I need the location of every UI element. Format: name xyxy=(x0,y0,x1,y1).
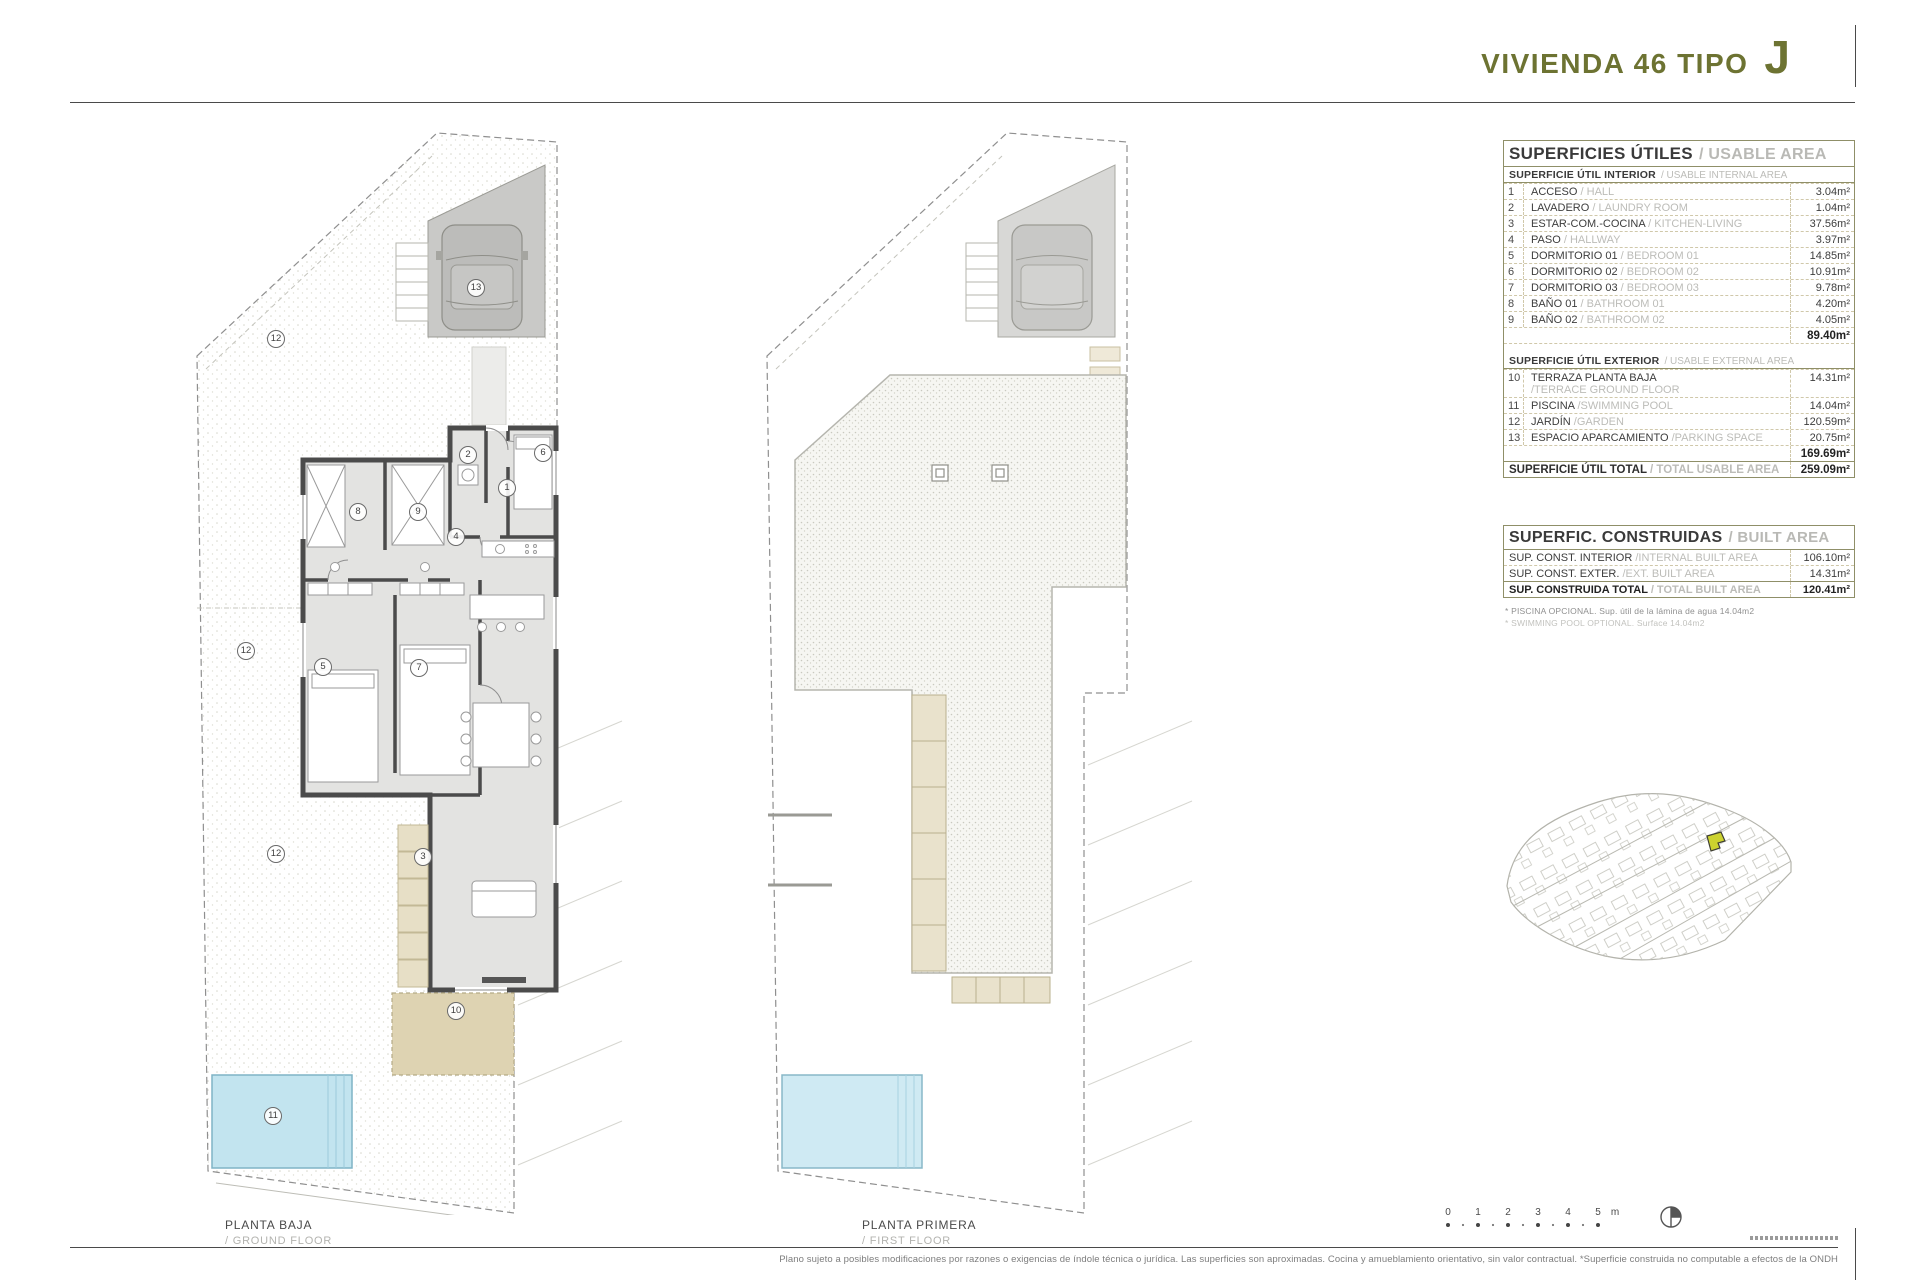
room-number-garden: 12 xyxy=(267,330,285,348)
room-number-bedroom1: 5 xyxy=(314,658,332,676)
header-border-segment xyxy=(1855,25,1856,87)
footnotes: * PISCINA OPCIONAL. Sup. útil de la lámi… xyxy=(1505,606,1754,628)
footer-border-segment xyxy=(1855,1228,1856,1280)
car-icon xyxy=(436,225,528,330)
table-row: 4PASO / HALLWAY3.97m² xyxy=(1504,231,1854,247)
room-number-terrace: 10 xyxy=(447,1002,465,1020)
scale-tick: 3 xyxy=(1535,1207,1541,1218)
room-number-laundry: 2 xyxy=(459,446,477,464)
table-row: 6DORMITORIO 02 / BEDROOM 0210.91m² xyxy=(1504,263,1854,279)
table-row: 12JARDÍN /GARDEN120.59m² xyxy=(1504,413,1854,429)
ground-floor-label: PLANTA BAJA / GROUND FLOOR xyxy=(225,1218,332,1247)
built-total-row: SUP. CONSTRUIDA TOTAL / TOTAL BUILT AREA… xyxy=(1504,581,1854,597)
north-arrow-icon xyxy=(1658,1204,1684,1235)
scale-tick: 5 xyxy=(1595,1207,1601,1218)
plan-sheet: VIVIENDA 46 TIPO J xyxy=(0,0,1920,1280)
scale-ticks-line xyxy=(1443,1221,1623,1229)
legal-disclaimer: Plano sujeto a posibles modificaciones p… xyxy=(500,1254,1838,1265)
table-spacer xyxy=(1504,343,1854,353)
interior-subheader: SUPERFICIE ÚTIL INTERIOR / USABLE INTERN… xyxy=(1504,167,1854,183)
room-number-hallway: 4 xyxy=(447,528,465,546)
title-text: VIVIENDA 46 TIPO xyxy=(1481,48,1748,80)
room-number-bedroom2: 6 xyxy=(534,444,552,462)
footnote-pool-en: * SWIMMING POOL OPTIONAL. Surface 14.04m… xyxy=(1505,618,1754,628)
room-number-parking: 13 xyxy=(467,279,485,297)
built-area-table: SUPERFIC. CONSTRUIDAS / BUILT AREA SUP. … xyxy=(1503,525,1855,598)
page-title: VIVIENDA 46 TIPO J xyxy=(1481,30,1790,84)
usable-area-table: SUPERFICIES ÚTILES / USABLE AREA SUPERFI… xyxy=(1503,140,1855,478)
ground-floor-plan: 1 2 3 4 5 6 7 8 9 10 11 12 12 12 13 xyxy=(170,125,630,1215)
table-row: 10TERRAZA PLANTA BAJA/TERRACE GROUND FLO… xyxy=(1504,369,1854,397)
scale-unit: m xyxy=(1611,1207,1619,1218)
table-row: 13ESPACIO APARCAMIENTO /PARKING SPACE20.… xyxy=(1504,429,1854,445)
scale-tick: 0 xyxy=(1445,1207,1451,1218)
fine-print-line xyxy=(1750,1236,1838,1240)
exterior-stairs xyxy=(396,243,428,321)
table-row: 2LAVADERO / LAUNDRY ROOM1.04m² xyxy=(1504,199,1854,215)
room-number-bath1: 8 xyxy=(349,503,367,521)
exterior-stairs xyxy=(966,243,998,321)
ground-floor-drawing xyxy=(170,125,630,1215)
table-row: 9BAÑO 02 / BATHROOM 024.05m² xyxy=(1504,311,1854,327)
scale-tick: 1 xyxy=(1475,1207,1481,1218)
exterior-subheader: SUPERFICIE ÚTIL EXTERIOR / USABLE EXTERN… xyxy=(1504,353,1854,369)
room-number-bedroom3: 7 xyxy=(410,659,428,677)
usable-total-row: SUPERFICIE ÚTIL TOTAL / TOTAL USABLE ARE… xyxy=(1504,461,1854,477)
footer-rule xyxy=(70,1247,1838,1248)
scale-tick: 4 xyxy=(1565,1207,1571,1218)
room-number-garden: 12 xyxy=(267,845,285,863)
table-row: 11PISCINA /SWIMMING POOL14.04m² xyxy=(1504,397,1854,413)
title-type-letter: J xyxy=(1764,30,1790,84)
entry-path xyxy=(472,347,506,425)
first-floor-label: PLANTA PRIMERA / FIRST FLOOR xyxy=(862,1218,976,1247)
usable-area-title: SUPERFICIES ÚTILES / USABLE AREA xyxy=(1504,141,1854,167)
pool xyxy=(212,1075,352,1168)
table-row: 5DORMITORIO 01 / BEDROOM 0114.85m² xyxy=(1504,247,1854,263)
exterior-subtotal: 169.69m² xyxy=(1504,445,1854,461)
table-row: 7DORMITORIO 03 / BEDROOM 039.78m² xyxy=(1504,279,1854,295)
road-hatch xyxy=(1088,721,1192,1165)
table-row: SUP. CONST. EXTER. /EXT. BUILT AREA14.31… xyxy=(1504,565,1854,581)
table-row: SUP. CONST. INTERIOR /INTERNAL BUILT ARE… xyxy=(1504,550,1854,565)
car-icon xyxy=(1012,225,1092,330)
table-row: 8BAÑO 01 / BATHROOM 014.20m² xyxy=(1504,295,1854,311)
room-number-pool: 11 xyxy=(264,1107,282,1125)
first-floor-plan xyxy=(740,125,1200,1215)
site-location-map xyxy=(1493,788,1813,978)
first-floor-drawing xyxy=(740,125,1200,1215)
footnote-pool-es: * PISCINA OPCIONAL. Sup. útil de la lámi… xyxy=(1505,606,1754,616)
table-row: 1ACCESO / HALL3.04m² xyxy=(1504,183,1854,199)
room-number-living: 3 xyxy=(414,848,432,866)
scale-bar: 0 1 2 3 4 5 m xyxy=(1443,1207,1643,1237)
balcony-step xyxy=(1090,347,1120,361)
header-rule xyxy=(70,102,1855,103)
interior-subtotal: 89.40m² xyxy=(1504,327,1854,343)
room-number-garden: 12 xyxy=(237,642,255,660)
table-row: 3ESTAR-COM.-COCINA / KITCHEN-LIVING37.56… xyxy=(1504,215,1854,231)
scale-tick: 2 xyxy=(1505,1207,1511,1218)
room-number-bath2: 9 xyxy=(409,503,427,521)
room-number-hall: 1 xyxy=(498,479,516,497)
built-area-title: SUPERFIC. CONSTRUIDAS / BUILT AREA xyxy=(1504,526,1854,550)
pool xyxy=(782,1075,922,1168)
